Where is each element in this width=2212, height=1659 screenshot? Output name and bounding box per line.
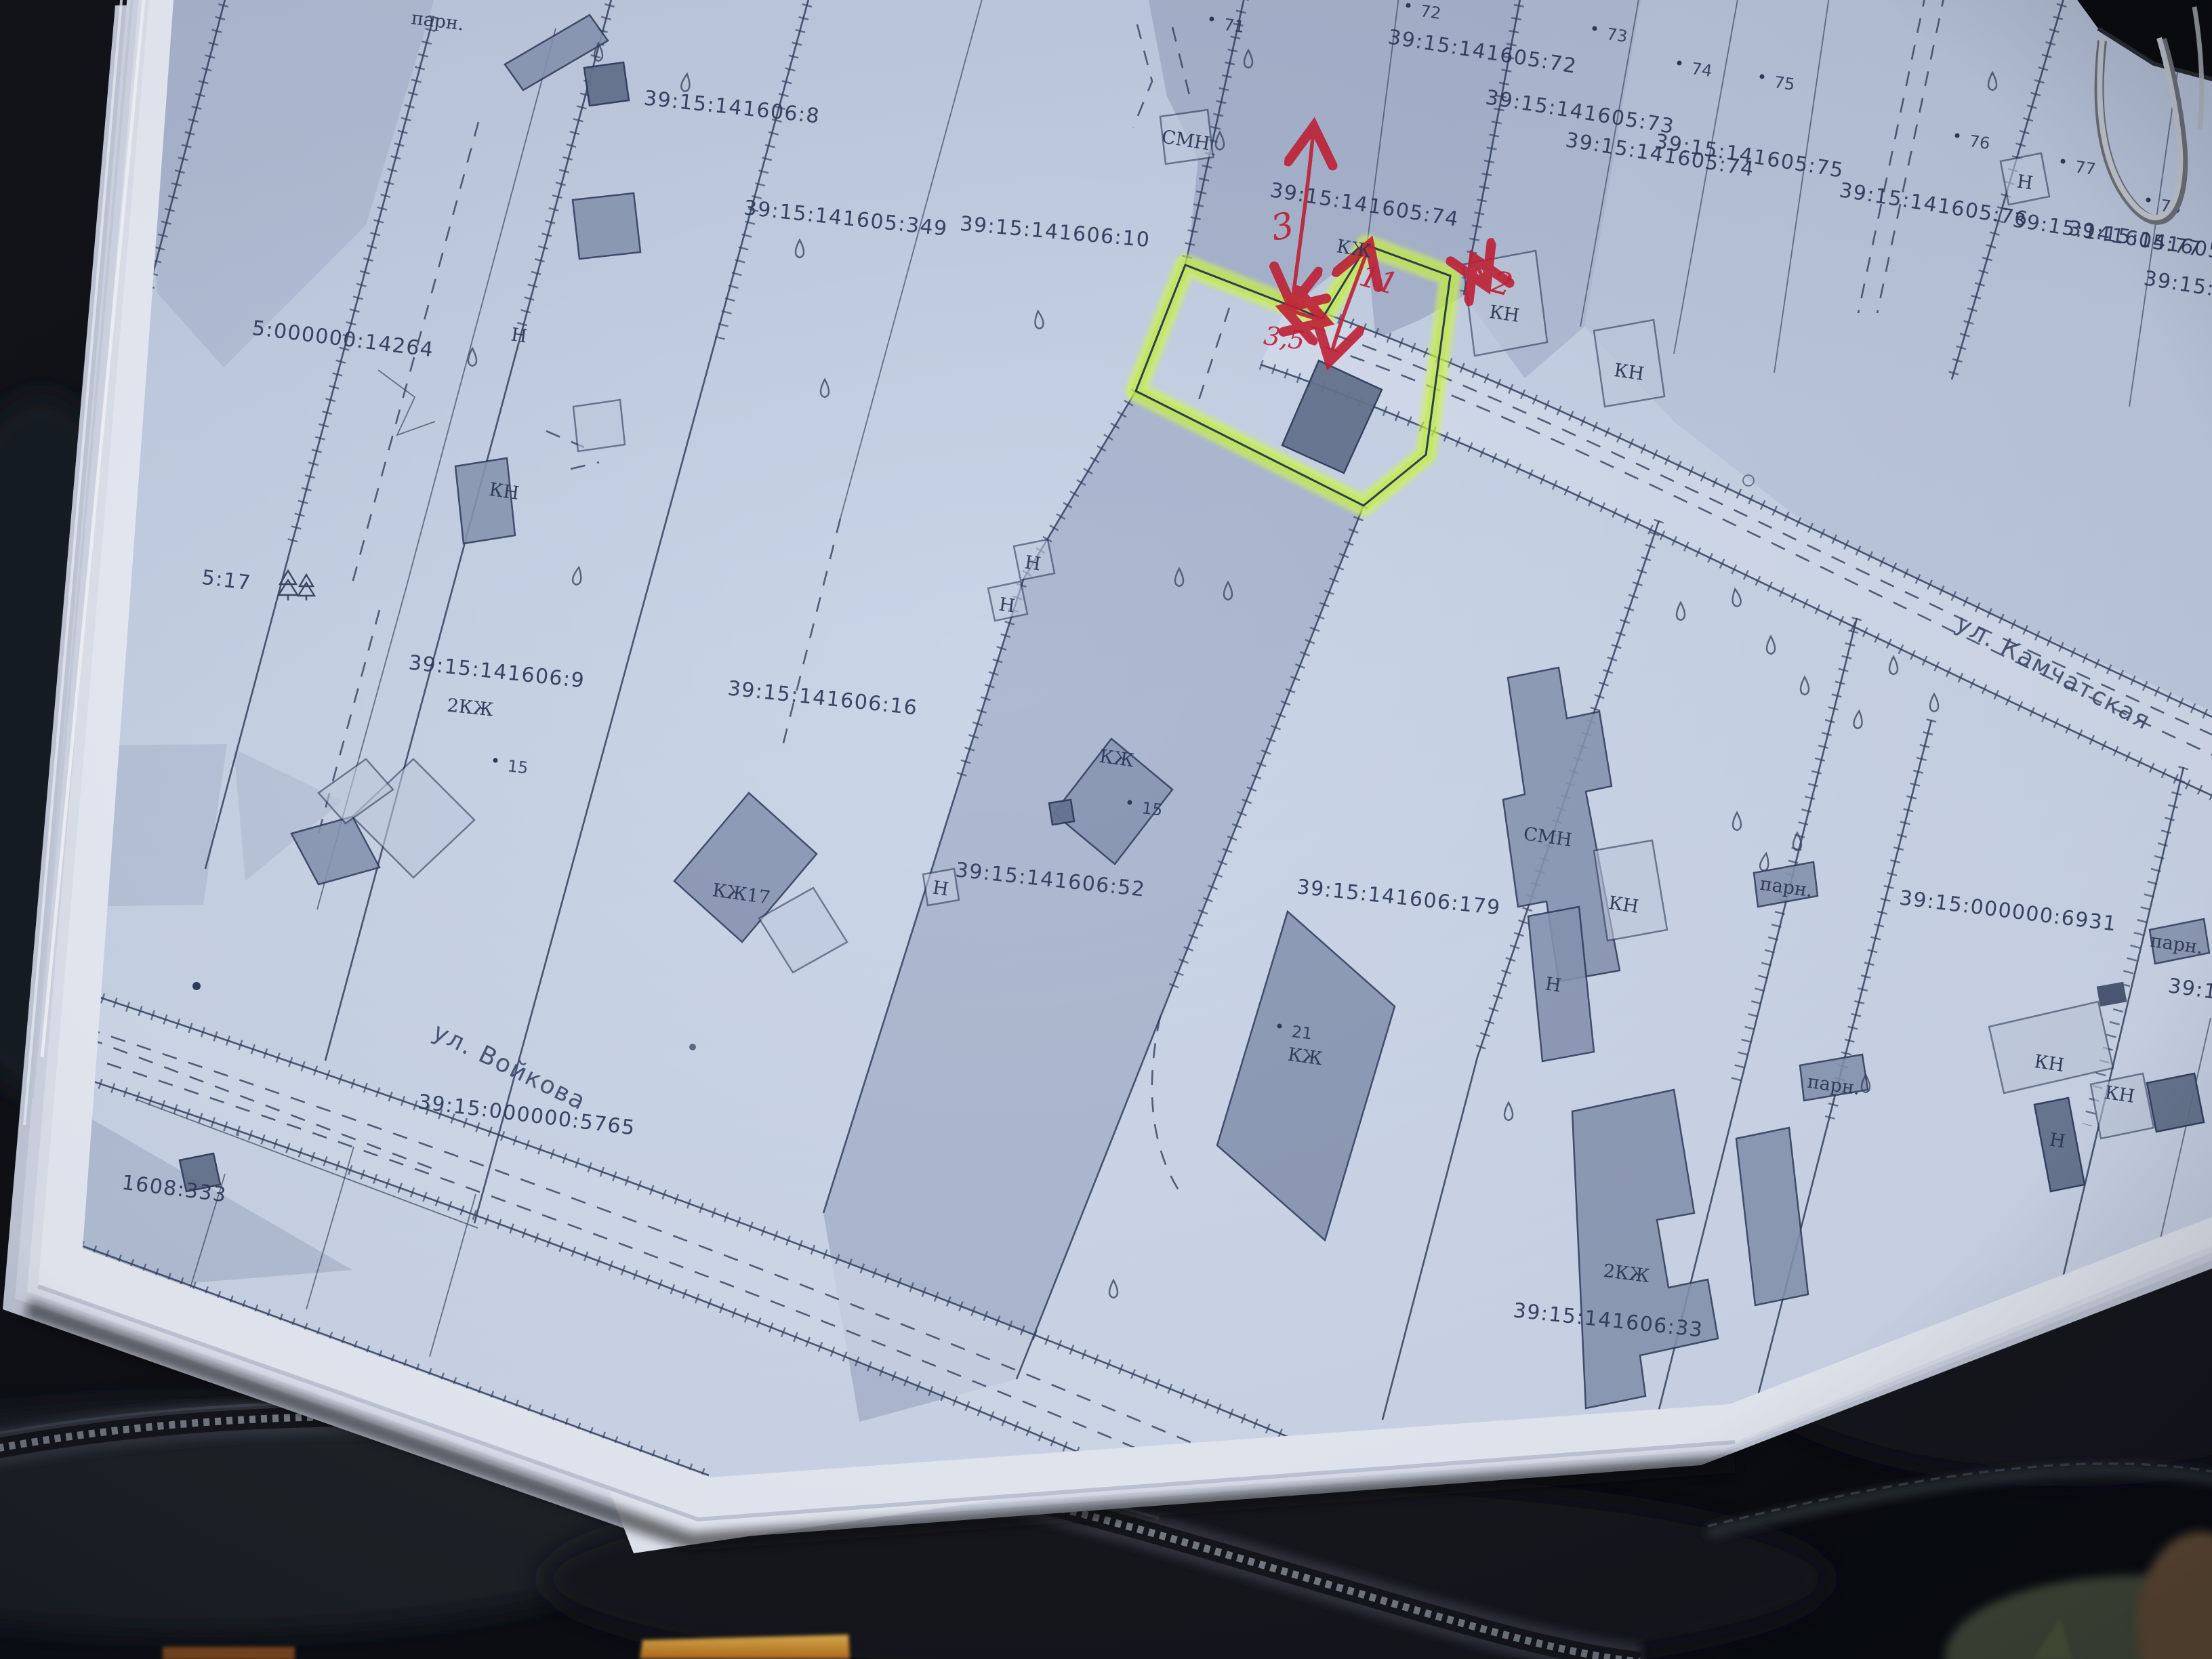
vignette-overlay [0,0,2212,1659]
scene-photo: 3 11 3,5 2 39:15:141606:8 39:15:141605:3… [0,0,2212,1659]
photo-cadastral-map-on-folio: { "colors": { "highlighter": "#c9f53c", … [0,0,2212,1659]
